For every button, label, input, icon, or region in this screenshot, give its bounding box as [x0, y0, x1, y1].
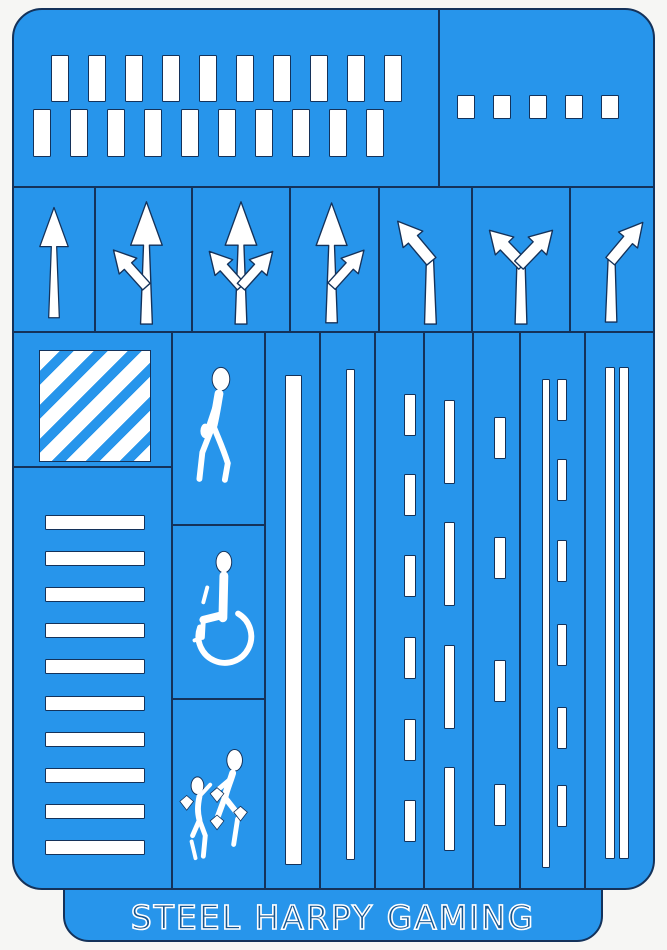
zebra-bar: [45, 768, 145, 783]
zebra-bar: [45, 804, 145, 819]
line-solid-and-dashed-dash: [557, 379, 567, 421]
arrow-straight-left-right-panel: [192, 187, 290, 332]
zebra-bar: [45, 551, 145, 566]
crosswalk-bar: [125, 55, 143, 102]
line-solid-and-dashed-dash: [557, 624, 567, 666]
arrow-straight-left-right-icon: [193, 188, 289, 331]
line-dashed-medium-dash: [404, 394, 416, 436]
crosswalk-bar: [199, 55, 217, 102]
arrow-straight-icon: [14, 188, 94, 331]
line-dashed-sparse-dash: [494, 784, 506, 826]
small-dash: [493, 95, 511, 119]
crosswalk-bar: [347, 55, 365, 102]
crosswalk-bar: [144, 109, 162, 157]
zebra-bar: [45, 659, 145, 674]
line-dashed-long-dash: [444, 522, 455, 606]
line-solid-and-dashed-dash: [557, 707, 567, 749]
diagonal-hatch-panel: [14, 332, 172, 467]
line-dashed-sparse-dash: [494, 417, 506, 459]
crosswalk-bar: [107, 109, 125, 157]
arrow-straight-left-icon: [96, 188, 191, 331]
line-dashed-medium-dash: [404, 800, 416, 842]
line-dashed-medium-dash: [404, 637, 416, 679]
pedestrian-wheelchair-panel: [172, 525, 265, 699]
arrow-turn-left-right-panel: [472, 187, 570, 332]
crosswalk-bar: [329, 109, 347, 157]
arrow-turn-left-panel: [379, 187, 472, 332]
crosswalk-bar: [33, 109, 51, 157]
arrow-turn-right-panel: [570, 187, 655, 332]
line-solid-wide-line: [285, 375, 302, 865]
zebra-bar: [45, 623, 145, 638]
line-dashed-medium-dash: [404, 555, 416, 597]
crosswalk-bar: [181, 109, 199, 157]
small-dash: [601, 95, 619, 119]
zebra-bar: [45, 587, 145, 602]
small-dash: [529, 95, 547, 119]
line-dashed-medium-dash: [404, 719, 416, 761]
line-solid-and-dashed-dash: [557, 540, 567, 582]
line-dashed-medium-panel: [375, 332, 424, 890]
line-dashed-medium-dash: [404, 474, 416, 516]
diagonal-hatch-icon: [40, 351, 150, 461]
line-double-solid-line: [619, 367, 629, 859]
brand-text: STEEL HARPY GAMING: [131, 896, 535, 940]
crosswalk-bar: [310, 55, 328, 102]
brand-tab: STEEL HARPY GAMING: [63, 884, 603, 942]
line-dashed-long-dash: [444, 767, 455, 851]
line-double-solid-line: [605, 367, 615, 859]
crosswalk-bar: [384, 55, 402, 102]
line-solid-and-dashed-dash: [557, 459, 567, 501]
pedestrian-wheelchair-icon: [173, 526, 264, 698]
pedestrian-children-panel: [172, 699, 265, 890]
arrow-straight-left-panel: [95, 187, 192, 332]
small-dash: [457, 95, 475, 119]
arrow-straight-panel: [14, 187, 95, 332]
crosswalk-bar: [366, 109, 384, 157]
arrow-turn-right-icon: [571, 188, 655, 331]
arrow-turn-left-right-icon: [473, 188, 569, 331]
stencil-product-image: STEEL HARPY GAMING: [0, 0, 667, 950]
zebra-bar: [45, 732, 145, 747]
zebra-bar: [45, 696, 145, 711]
zebra-bar: [45, 840, 145, 855]
stencil-sheet: [12, 8, 655, 890]
crosswalk-bar: [255, 109, 273, 157]
small-dash: [565, 95, 583, 119]
line-solid-and-dashed-line: [542, 379, 550, 868]
line-dashed-sparse-dash: [494, 537, 506, 579]
line-dashed-long-dash: [444, 645, 455, 729]
crosswalk-bar: [273, 55, 291, 102]
crosswalk-bars-panel: [14, 10, 439, 187]
crosswalk-bar: [236, 55, 254, 102]
crosswalk-bar: [292, 109, 310, 157]
pedestrian-walking-icon: [173, 333, 264, 524]
zebra-bar: [45, 515, 145, 530]
arrow-straight-right-panel: [290, 187, 379, 332]
line-solid-and-dashed-dash: [557, 785, 567, 827]
pedestrian-children-icon: [173, 700, 264, 890]
crosswalk-bar: [218, 109, 236, 157]
arrow-turn-left-icon: [380, 188, 471, 331]
crosswalk-bar: [162, 55, 180, 102]
zebra-crossing-panel: [14, 467, 172, 890]
crosswalk-bar: [51, 55, 69, 102]
arrow-straight-right-icon: [291, 188, 378, 331]
crosswalk-bar: [88, 55, 106, 102]
pedestrian-walking-panel: [172, 332, 265, 525]
line-dashed-sparse-dash: [494, 660, 506, 702]
line-dashed-long-dash: [444, 400, 455, 484]
crosswalk-bar: [70, 109, 88, 157]
line-solid-thin-line: [346, 369, 355, 860]
line-solid-and-dashed-panel: [520, 332, 585, 890]
